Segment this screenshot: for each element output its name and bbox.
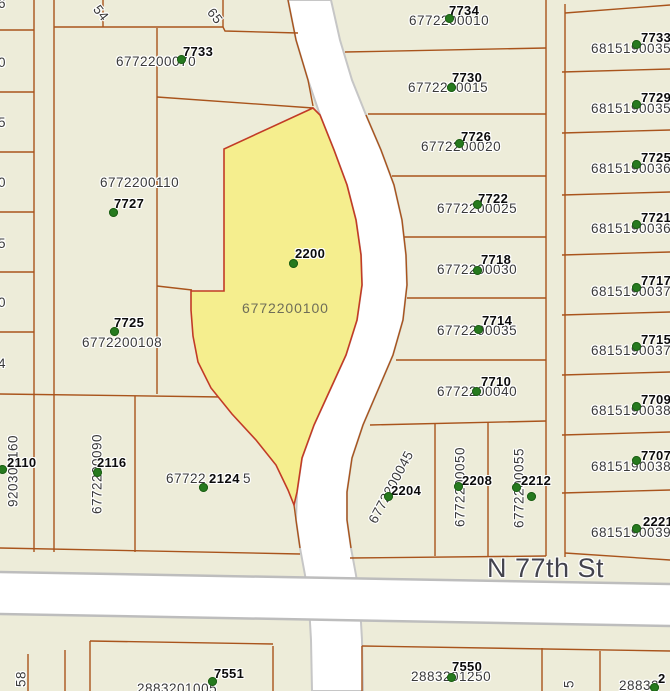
map-viewport[interactable]: 7733 6772200070 6772200110 7727 7725 677… <box>0 0 670 691</box>
parcel-address-label: 7707 <box>641 448 670 463</box>
parcel-dot-icon <box>632 402 641 411</box>
parcel-id-label: 6772200108 <box>82 335 162 350</box>
parcel-address-label: 7721 <box>641 210 670 225</box>
parcel-dot-icon <box>632 160 641 169</box>
parcel-dot-icon <box>632 100 641 109</box>
selected-parcel-id-label: 6772200100 <box>242 300 329 316</box>
parcel-id-label: 920300160 <box>6 435 21 507</box>
parcel-address-label: 7726 <box>461 129 491 144</box>
parcel-dot-icon <box>632 456 641 465</box>
parcel-address-label: 7710 <box>481 374 511 389</box>
parcel-dot-icon <box>447 83 456 92</box>
parcel-address-label: 7718 <box>481 252 511 267</box>
parcel-id-fragment: 0 <box>0 295 6 310</box>
parcel-address-label: 7715 <box>641 332 670 347</box>
parcel-address-label: 7709 <box>641 392 670 407</box>
parcel-address-label: 7722 <box>478 191 508 206</box>
parcel-address-label: 2 <box>658 671 666 686</box>
parcel-address-label: 2116 <box>97 455 126 470</box>
parcel-dot-icon <box>93 468 102 477</box>
parcel-id-fragment: 0 <box>0 175 6 190</box>
parcel-address-label: 2221 <box>643 514 670 529</box>
parcel-id-fragment: 5 <box>0 236 6 251</box>
parcel-address-label: 2212 <box>521 473 551 488</box>
parcel-id-fragment: 4 <box>0 356 6 371</box>
parcel-dot-icon <box>454 482 463 491</box>
parcel-dot-icon <box>650 683 659 691</box>
parcel-id-fragment: 5 <box>0 115 6 130</box>
parcel-address-label: 7729 <box>641 90 670 105</box>
parcel-address-label: 2204 <box>391 483 421 498</box>
parcel-id-fragment: 58 <box>14 671 29 687</box>
parcel-address-label: 7714 <box>482 313 512 328</box>
parcel-dot-icon <box>632 40 641 49</box>
parcel-address-label: 7550 <box>452 659 482 674</box>
parcel-address-label: 7733 <box>641 30 670 45</box>
parcel-address-label: 7717 <box>641 273 670 288</box>
parcel-address-label: 7733 <box>183 44 213 59</box>
parcel-dot-icon <box>473 266 482 275</box>
parcel-address-label: 7551 <box>214 666 244 681</box>
parcel-id-fragment: 6 <box>0 0 6 11</box>
parcel-dot-icon <box>632 283 641 292</box>
parcel-dot-icon <box>110 327 119 336</box>
parcel-id-label: 6772200110 <box>100 175 179 190</box>
parcel-address-label: 2110 <box>7 455 36 470</box>
parcel-dot-icon <box>455 139 464 148</box>
street-name-label: N 77th St <box>487 553 604 584</box>
parcel-dot-icon <box>632 342 641 351</box>
parcel-dot-icon <box>473 200 482 209</box>
parcel-dot-icon <box>199 483 208 492</box>
parcel-dot-icon <box>472 387 481 396</box>
parcel-id-fragment: 5 <box>243 471 251 486</box>
parcel-address-label: 7727 <box>114 196 144 211</box>
parcel-dot-icon <box>177 55 186 64</box>
parcel-dot-icon <box>208 677 217 686</box>
parcel-address-label: 7725 <box>114 315 144 330</box>
parcel-address-label: 2124 <box>209 471 240 486</box>
parcel-id-label: 6772221245 <box>166 471 251 486</box>
parcel-address-label: 7725 <box>641 150 670 165</box>
parcel-dot-icon <box>445 14 454 23</box>
parcel-address-label: 2208 <box>462 473 492 488</box>
parcel-dot-icon <box>384 492 393 501</box>
parcel-id-fragment: 5 <box>562 680 577 688</box>
parcel-dot-icon <box>289 259 298 268</box>
parcel-dot-icon <box>527 492 536 501</box>
parcel-dot-icon <box>447 673 456 682</box>
selected-parcel-address-label: 2200 <box>295 246 325 261</box>
parcel-dot-icon <box>474 325 483 334</box>
parcel-dot-icon <box>632 220 641 229</box>
parcel-dot-icon <box>632 524 641 533</box>
parcel-address-label: 7730 <box>452 70 482 85</box>
parcel-id-label: 2883201005 <box>137 681 217 691</box>
parcel-dot-icon <box>512 483 521 492</box>
parcel-id-fragment: 0 <box>0 55 6 70</box>
parcel-dot-icon <box>109 208 118 217</box>
